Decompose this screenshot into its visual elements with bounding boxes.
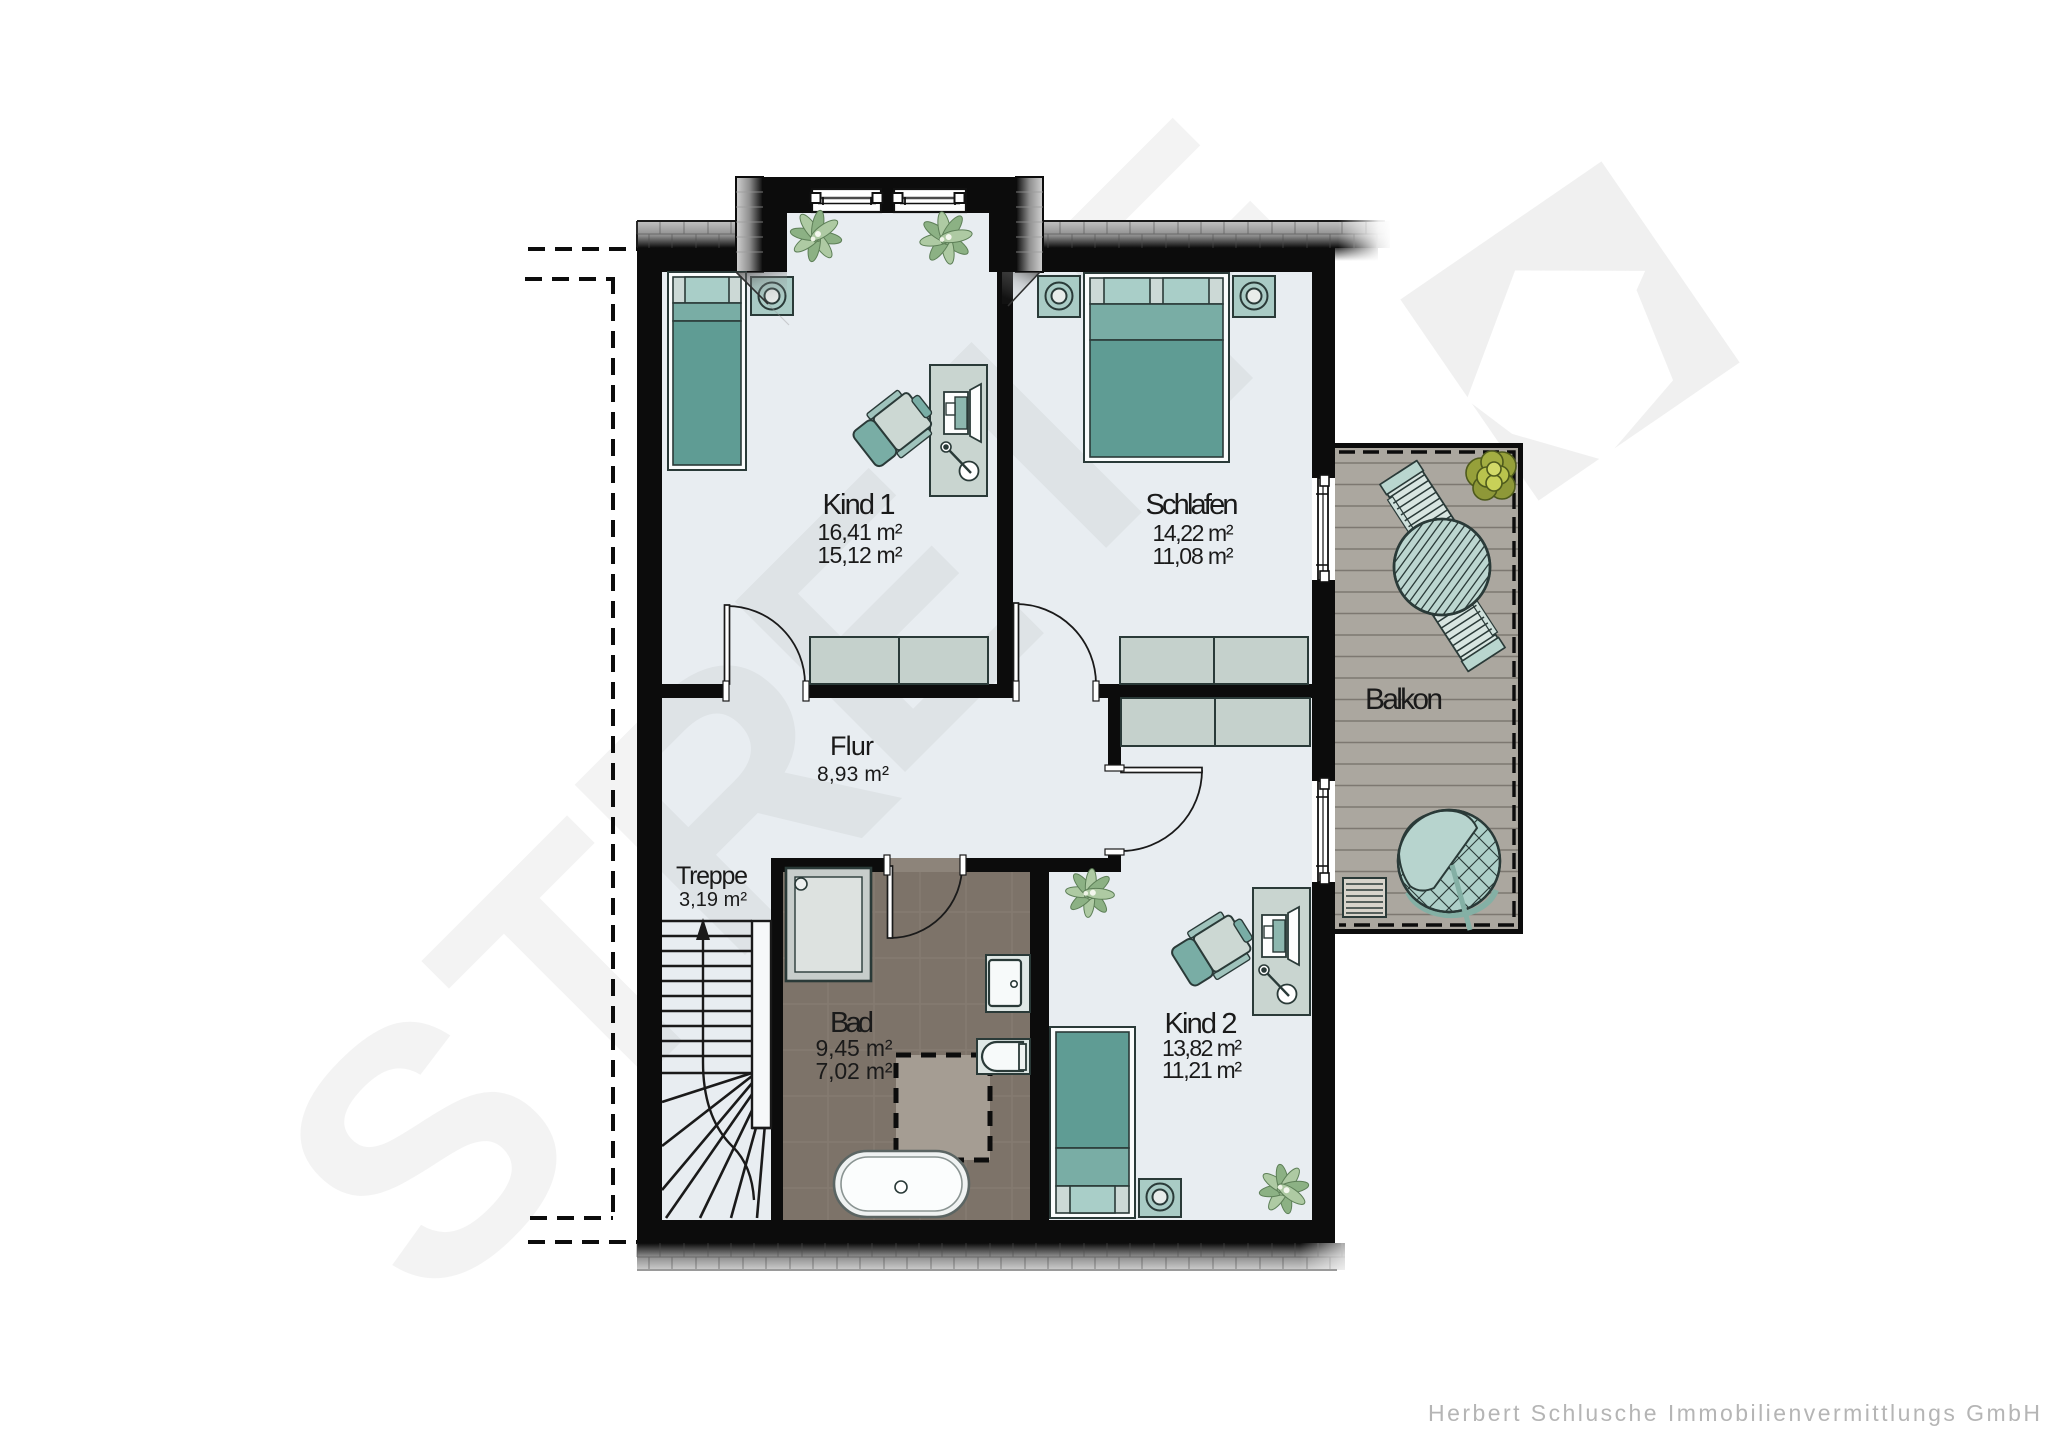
- svg-text:Kind 1: Kind 1: [823, 489, 896, 521]
- svg-text:Flur: Flur: [830, 731, 874, 761]
- svg-text:Balkon: Balkon: [1365, 683, 1443, 716]
- svg-text:11,21 m²: 11,21 m²: [1162, 1057, 1242, 1083]
- svg-text:3,19 m²: 3,19 m²: [679, 889, 747, 911]
- svg-text:11,08 m²: 11,08 m²: [1153, 543, 1234, 569]
- svg-text:Treppe: Treppe: [676, 862, 748, 890]
- svg-text:Schlafen: Schlafen: [1146, 489, 1239, 521]
- svg-text:7,02 m²: 7,02 m²: [816, 1058, 893, 1084]
- svg-text:15,12 m²: 15,12 m²: [818, 542, 903, 568]
- svg-text:8,93 m²: 8,93 m²: [817, 763, 889, 786]
